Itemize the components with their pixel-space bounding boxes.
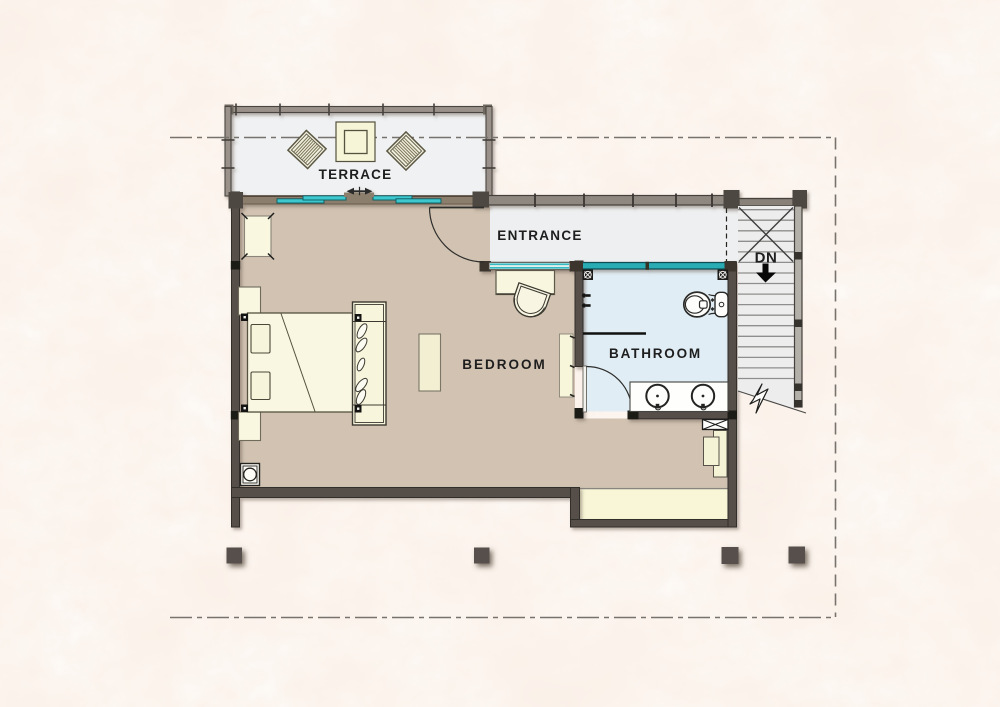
- svg-text:BEDROOM: BEDROOM: [462, 357, 547, 372]
- svg-text:ENTRANCE: ENTRANCE: [497, 228, 582, 243]
- svg-text:TERRACE: TERRACE: [319, 167, 393, 182]
- svg-text:BATHROOM: BATHROOM: [609, 346, 702, 361]
